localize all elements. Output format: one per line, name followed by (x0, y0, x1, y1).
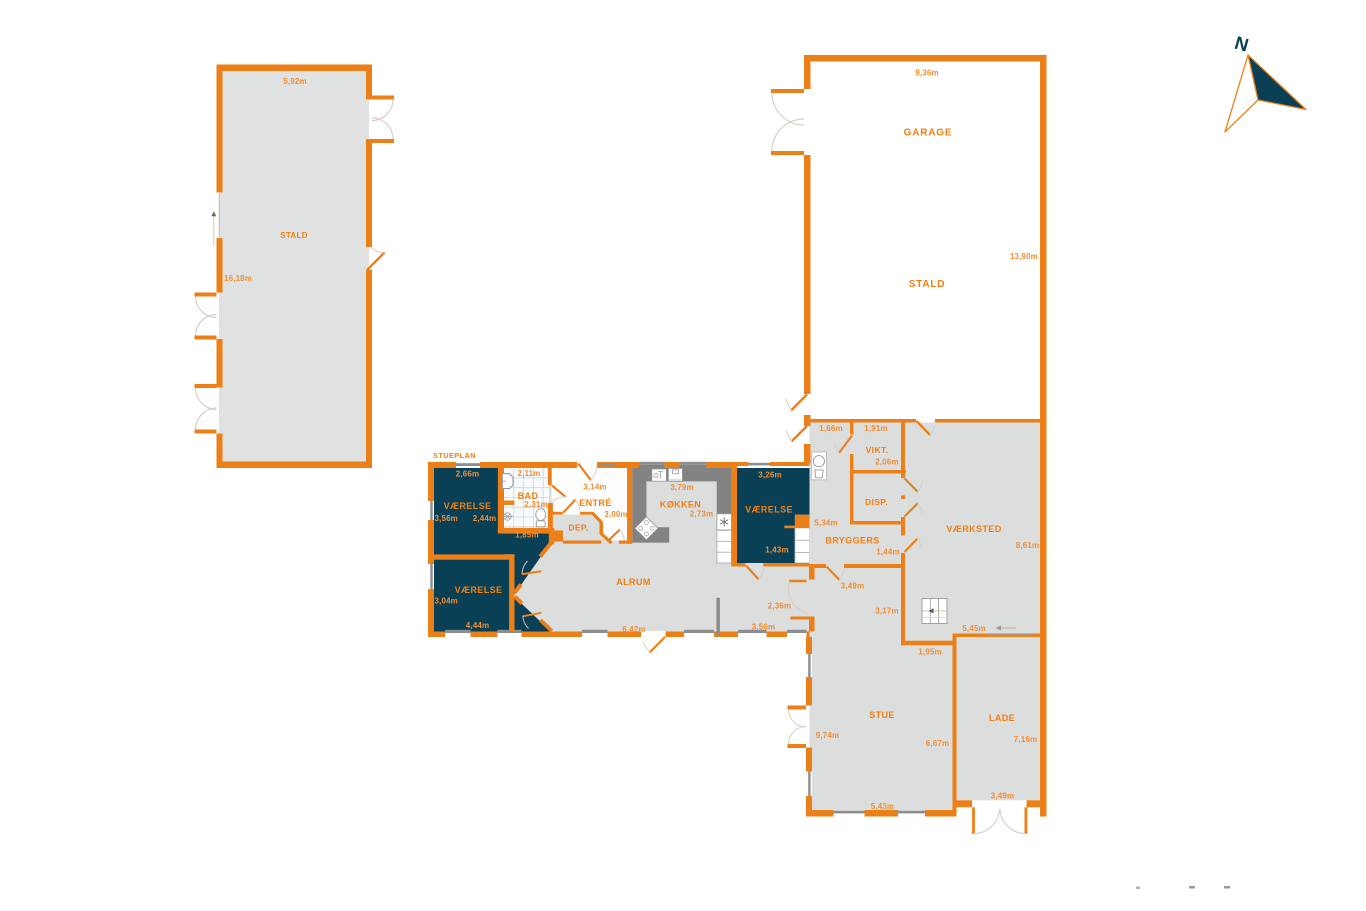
svg-text:GARAGE: GARAGE (904, 128, 953, 139)
svg-text:1,85m: 1,85m (515, 531, 538, 540)
svg-text:5,45m: 5,45m (962, 624, 985, 633)
svg-text:1,66m: 1,66m (819, 424, 842, 433)
svg-text:KØKKEN: KØKKEN (660, 500, 701, 510)
svg-text:1,91m: 1,91m (864, 424, 887, 433)
svg-text:2,73m: 2,73m (690, 510, 713, 519)
svg-text:3,14m: 3,14m (583, 483, 606, 492)
svg-text:3,04m: 3,04m (435, 597, 458, 606)
svg-text:2,36m: 2,36m (768, 602, 791, 611)
svg-text:5,92m: 5,92m (283, 77, 306, 86)
svg-text:VÆRELSE: VÆRELSE (444, 501, 492, 511)
svg-text:STUE: STUE (869, 710, 895, 720)
svg-text:5,34m: 5,34m (814, 519, 837, 528)
svg-text:VÆRELSE: VÆRELSE (455, 585, 503, 595)
svg-text:STALD: STALD (280, 231, 308, 240)
svg-text:BRYGGERS: BRYGGERS (825, 536, 879, 546)
svg-text:4,44m: 4,44m (466, 621, 489, 630)
svg-text:N: N (1232, 32, 1251, 56)
svg-text:13,90m: 13,90m (1010, 252, 1038, 261)
svg-text:3,56m: 3,56m (435, 514, 458, 523)
svg-text:2,31m: 2,31m (524, 500, 547, 509)
svg-text:LADE: LADE (989, 713, 1015, 723)
svg-text:3,26m: 3,26m (758, 471, 781, 480)
svg-text:DEP.: DEP. (568, 523, 588, 533)
svg-text:7,16m: 7,16m (1014, 735, 1037, 744)
svg-text:3,79m: 3,79m (670, 483, 693, 492)
svg-text:6,67m: 6,67m (926, 739, 949, 748)
svg-text:1,44m: 1,44m (876, 548, 899, 557)
svg-text:3,49m: 3,49m (841, 582, 864, 591)
svg-text:9,36m: 9,36m (915, 69, 938, 78)
svg-text:9,74m: 9,74m (816, 731, 839, 740)
svg-text:VÆRELSE: VÆRELSE (745, 505, 793, 515)
svg-text:2,66m: 2,66m (456, 470, 479, 479)
svg-text:3,56m: 3,56m (752, 623, 775, 632)
svg-text:STALD: STALD (909, 279, 946, 290)
svg-text:2,06m: 2,06m (875, 458, 898, 467)
svg-text:3,00m: 3,00m (604, 510, 627, 519)
svg-text:ENTRÉ: ENTRÉ (579, 498, 612, 508)
svg-text:3,49m: 3,49m (991, 792, 1014, 801)
svg-text:ALRUM: ALRUM (616, 577, 651, 587)
svg-text:3,17m: 3,17m (875, 607, 898, 616)
svg-text:2,44m: 2,44m (473, 514, 496, 523)
svg-text:1,43m: 1,43m (765, 546, 788, 555)
svg-text:16,18m: 16,18m (224, 274, 252, 283)
svg-text:5,43m: 5,43m (871, 802, 894, 811)
svg-text:DISP.: DISP. (865, 497, 888, 507)
svg-text:8,61m: 8,61m (1016, 541, 1039, 550)
svg-text:1,95m: 1,95m (918, 648, 941, 657)
svg-text:VIKT.: VIKT. (866, 445, 889, 455)
svg-text:2,11m: 2,11m (518, 469, 541, 478)
svg-text:STUEPLAN: STUEPLAN (433, 451, 476, 460)
svg-text:6,42m: 6,42m (622, 625, 645, 634)
svg-text:VÆRKSTED: VÆRKSTED (946, 524, 1001, 534)
